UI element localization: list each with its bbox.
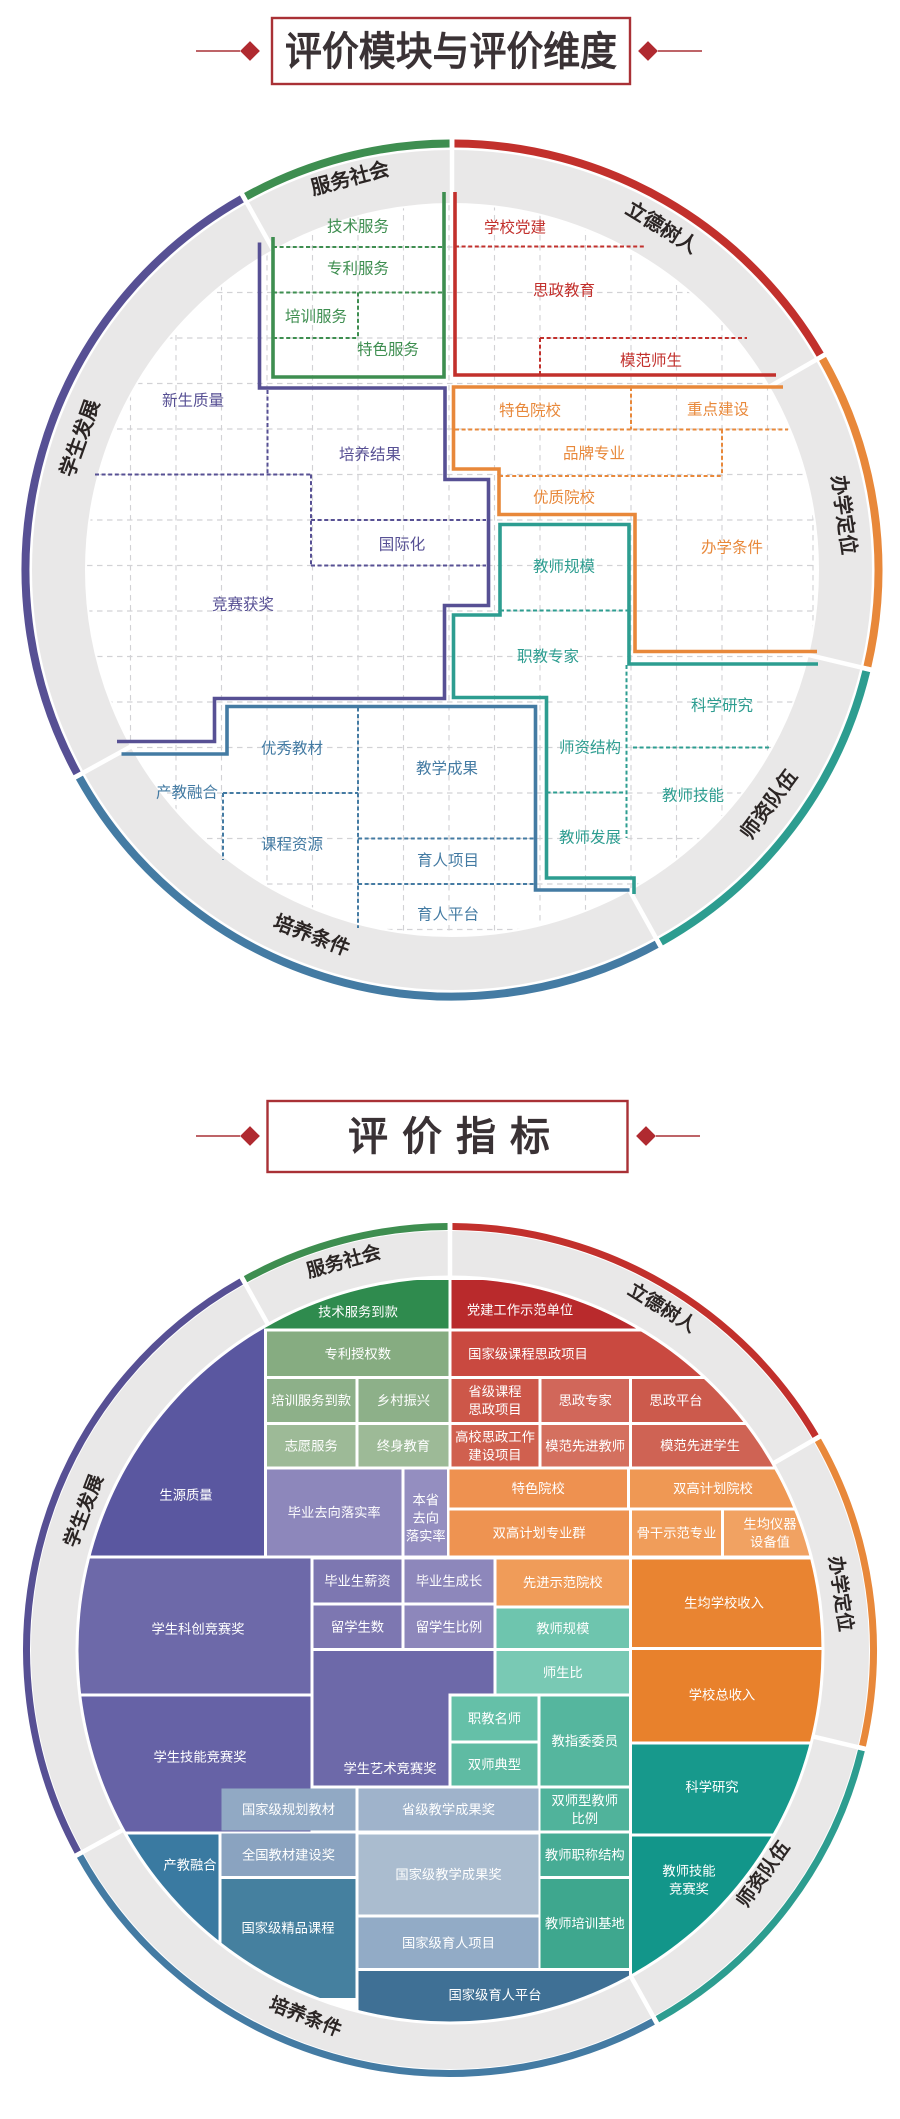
svg-text:教学成果: 教学成果 xyxy=(416,759,478,777)
svg-text:留学生数: 留学生数 xyxy=(331,1619,384,1634)
svg-text:留学生比例: 留学生比例 xyxy=(416,1619,482,1634)
svg-text:终身教育: 终身教育 xyxy=(377,1438,430,1453)
svg-text:特色服务: 特色服务 xyxy=(357,340,419,358)
svg-text:生均仪器: 生均仪器 xyxy=(743,1517,796,1532)
svg-text:骨干示范专业: 骨干示范专业 xyxy=(637,1526,717,1541)
svg-text:竞赛获奖: 竞赛获奖 xyxy=(212,594,274,613)
svg-text:国家级规划教材: 国家级规划教材 xyxy=(242,1801,335,1817)
svg-text:模范先进学生: 模范先进学生 xyxy=(660,1438,740,1453)
svg-text:科学研究: 科学研究 xyxy=(691,696,753,714)
svg-text:国家级教学成果奖: 国家级教学成果奖 xyxy=(395,1866,501,1882)
svg-text:省级教学成果奖: 省级教学成果奖 xyxy=(402,1802,495,1817)
svg-text:思政项目: 思政项目 xyxy=(468,1402,521,1417)
svg-text:专利授权数: 专利授权数 xyxy=(325,1345,391,1361)
svg-text:去向: 去向 xyxy=(413,1511,440,1526)
svg-text:特色院校: 特色院校 xyxy=(499,400,561,419)
svg-text:双高计划专业群: 双高计划专业群 xyxy=(493,1525,586,1541)
svg-text:教指委委员: 教指委委员 xyxy=(552,1734,618,1749)
svg-text:设备值: 设备值 xyxy=(750,1534,790,1550)
svg-text:国家级育人项目: 国家级育人项目 xyxy=(402,1934,495,1950)
svg-text:重点建设: 重点建设 xyxy=(687,400,749,418)
svg-text:双师典型: 双师典型 xyxy=(468,1757,521,1772)
svg-text:产教融合: 产教融合 xyxy=(163,1858,216,1873)
svg-text:模范先进教师: 模范先进教师 xyxy=(545,1438,625,1453)
svg-text:评价模块与评价维度: 评价模块与评价维度 xyxy=(285,30,617,74)
svg-text:教师技能: 教师技能 xyxy=(662,1864,715,1879)
svg-text:比例: 比例 xyxy=(572,1811,599,1826)
svg-text:生均学校收入: 生均学校收入 xyxy=(684,1595,764,1611)
svg-text:科学研究: 科学研究 xyxy=(685,1780,738,1795)
svg-text:师资结构: 师资结构 xyxy=(559,738,621,756)
svg-text:双师型教师: 双师型教师 xyxy=(552,1793,618,1808)
svg-text:学生科创竞赛奖: 学生科创竞赛奖 xyxy=(151,1621,244,1637)
svg-text:特色院校: 特色院校 xyxy=(512,1480,565,1496)
svg-text:教师职称结构: 教师职称结构 xyxy=(545,1847,625,1862)
svg-text:国家级课程思政项目: 国家级课程思政项目 xyxy=(468,1346,588,1362)
svg-text:教师发展: 教师发展 xyxy=(559,828,621,846)
svg-text:新生质量: 新生质量 xyxy=(162,391,224,409)
svg-text:学生艺术竞赛奖: 学生艺术竞赛奖 xyxy=(343,1760,436,1776)
svg-text:培训服务: 培训服务 xyxy=(285,307,347,325)
svg-text:毕业生成长: 毕业生成长 xyxy=(416,1574,482,1589)
svg-text:全国教材建设奖: 全国教材建设奖 xyxy=(242,1846,335,1862)
svg-text:省级课程: 省级课程 xyxy=(468,1384,521,1399)
svg-text:教师规模: 教师规模 xyxy=(536,1621,589,1636)
svg-text:学校总收入: 学校总收入 xyxy=(689,1687,755,1703)
svg-text:职教专家: 职教专家 xyxy=(517,647,579,665)
svg-text:培训服务到款: 培训服务到款 xyxy=(271,1393,351,1408)
svg-text:课程资源: 课程资源 xyxy=(261,835,323,853)
svg-text:培养结果: 培养结果 xyxy=(339,445,401,463)
svg-text:竞赛奖: 竞赛奖 xyxy=(669,1881,709,1897)
svg-text:乡村振兴: 乡村振兴 xyxy=(377,1393,430,1408)
svg-text:师生比: 师生比 xyxy=(543,1665,583,1680)
svg-text:建设项目: 建设项目 xyxy=(468,1447,521,1462)
svg-text:学校党建: 学校党建 xyxy=(484,218,546,236)
svg-text:生源质量: 生源质量 xyxy=(159,1488,212,1503)
svg-text:学生技能竞赛奖: 学生技能竞赛奖 xyxy=(153,1749,246,1765)
svg-text:国家级育人平台: 国家级育人平台 xyxy=(448,1987,541,2003)
svg-text:国际化: 国际化 xyxy=(379,535,426,553)
svg-text:党建工作示范单位: 党建工作示范单位 xyxy=(467,1303,573,1318)
svg-text:思政平台: 思政平台 xyxy=(649,1393,702,1408)
svg-text:专利服务: 专利服务 xyxy=(327,259,389,277)
svg-text:教师培训基地: 教师培训基地 xyxy=(545,1916,625,1931)
svg-text:毕业生薪资: 毕业生薪资 xyxy=(324,1574,390,1589)
svg-text:落实率: 落实率 xyxy=(406,1528,446,1544)
svg-text:模范师生: 模范师生 xyxy=(620,351,682,369)
svg-text:技术服务: 技术服务 xyxy=(327,217,389,235)
svg-text:双高计划院校: 双高计划院校 xyxy=(673,1480,753,1496)
svg-text:高校思政工作: 高校思政工作 xyxy=(455,1428,535,1444)
svg-text:教师规模: 教师规模 xyxy=(533,557,595,575)
svg-text:办学条件: 办学条件 xyxy=(701,538,763,556)
svg-text:教师技能: 教师技能 xyxy=(662,786,724,804)
svg-text:志愿服务: 志愿服务 xyxy=(285,1438,338,1453)
svg-text:毕业去向落实率: 毕业去向落实率 xyxy=(288,1504,381,1520)
svg-text:育人项目: 育人项目 xyxy=(417,851,479,869)
svg-text:产教融合: 产教融合 xyxy=(156,783,219,801)
svg-text:优质院校: 优质院校 xyxy=(533,487,595,506)
svg-text:先进示范院校: 先进示范院校 xyxy=(523,1574,603,1590)
svg-text:品牌专业: 品牌专业 xyxy=(563,444,625,462)
svg-text:本省: 本省 xyxy=(413,1493,440,1508)
svg-text:思政专家: 思政专家 xyxy=(559,1392,612,1408)
svg-text:思政教育: 思政教育 xyxy=(533,281,595,299)
svg-text:育人平台: 育人平台 xyxy=(417,905,479,923)
svg-text:国家级精品课程: 国家级精品课程 xyxy=(241,1920,334,1936)
svg-text:技术服务到款: 技术服务到款 xyxy=(318,1305,398,1320)
svg-text:优秀教材: 优秀教材 xyxy=(261,739,323,757)
svg-text:职教名师: 职教名师 xyxy=(468,1711,521,1726)
